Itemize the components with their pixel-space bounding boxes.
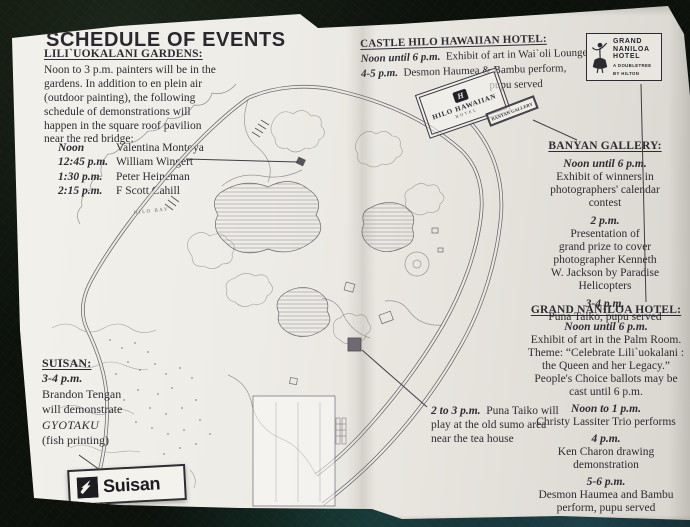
leader-lines	[0, 0, 690, 527]
leader-line-banyan-tag	[533, 120, 577, 140]
leader-line-sumo	[362, 350, 427, 407]
leader-line-naniloa	[641, 84, 646, 302]
leader-line-suisan	[79, 455, 100, 470]
schedule-flyer-paper: SCHEDULE OF EVENTS LILI`UOKALANI GARDENS…	[0, 0, 690, 527]
photo-of-schedule-flyer: SCHEDULE OF EVENTS LILI`UOKALANI GARDENS…	[0, 0, 690, 527]
leader-line-pavilion	[186, 159, 298, 162]
